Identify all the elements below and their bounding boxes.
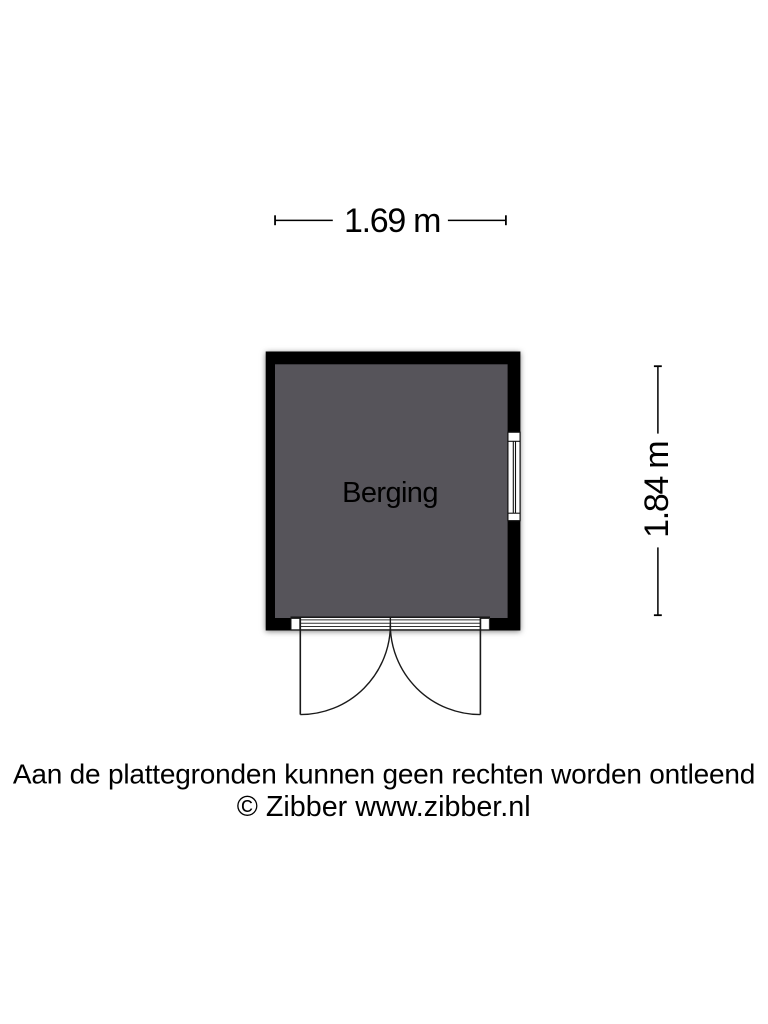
- svg-text:1.84 m: 1.84 m: [638, 442, 676, 538]
- svg-text:1.69 m: 1.69 m: [344, 202, 440, 240]
- svg-text:Berging: Berging: [342, 477, 438, 509]
- svg-text:Aan de plattegronden kunnen ge: Aan de plattegronden kunnen geen rechten…: [13, 758, 755, 789]
- svg-text:© Zibber www.zibber.nl: © Zibber www.zibber.nl: [237, 791, 531, 823]
